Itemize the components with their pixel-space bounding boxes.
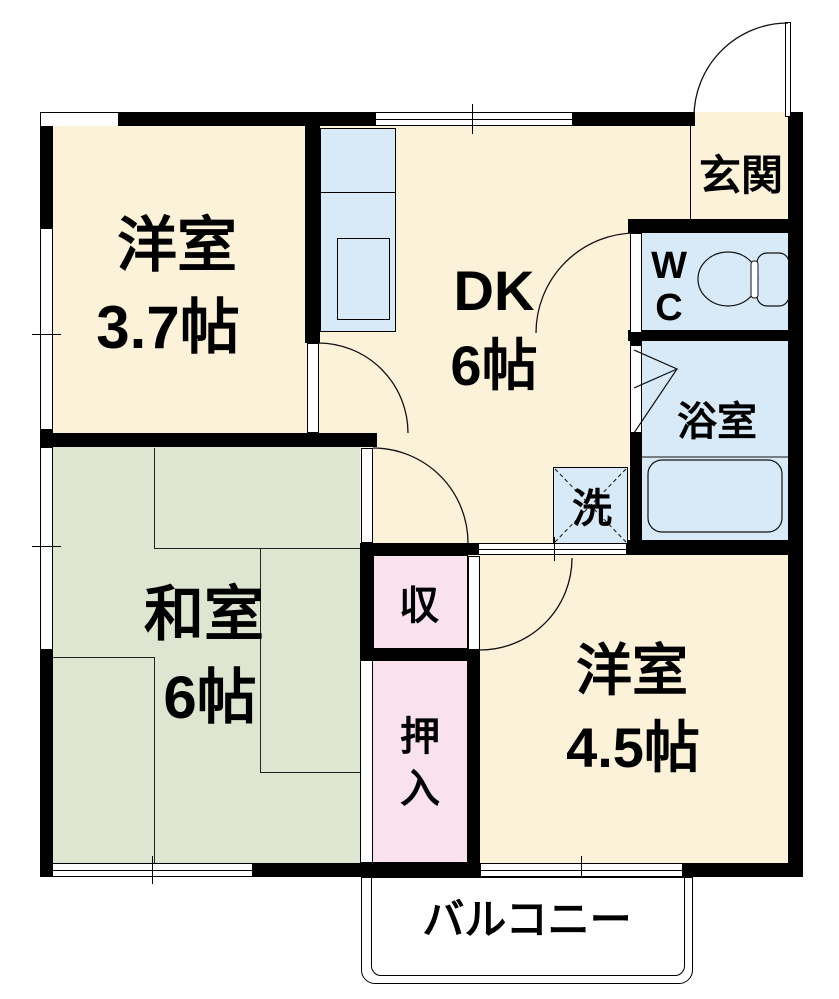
wall-bottom-b (683, 863, 803, 877)
wall-top-b (573, 112, 695, 126)
balcony-label: バルコニー (422, 899, 631, 941)
room37-name-label: 洋室 (117, 216, 237, 276)
wall-left-c (40, 650, 53, 877)
window-washitsu-left (40, 447, 53, 650)
door-leaf-bath-folding (630, 345, 642, 433)
room45-size-label: 4.5帖 (566, 720, 700, 776)
oshiire-fusuma-door (360, 660, 373, 863)
room45-name-label: 洋室 (576, 643, 688, 699)
wall-top-a (118, 112, 375, 126)
bathroom-label: 浴室 (677, 402, 757, 442)
kitchen-counter-divider (320, 192, 396, 193)
washitsu-name-label: 和室 (144, 585, 264, 645)
wall-bath-bottom (627, 540, 803, 555)
dk-size-label: 6帖 (450, 338, 537, 394)
door-leaf-room37 (307, 343, 319, 433)
washitsu-floor (53, 447, 360, 863)
genkan-divider-line (690, 117, 691, 219)
laundry-label: 洗 (572, 489, 612, 529)
entrance-door-arc (694, 23, 788, 117)
wall-corner-topleft (40, 112, 118, 126)
wall-wc-bath (628, 330, 803, 341)
washitsu-size-label: 6帖 (163, 668, 256, 728)
window-room37-left (40, 228, 53, 430)
door-leaf-room45 (468, 556, 480, 650)
oshiire-label-1: 押 (400, 717, 440, 757)
door-leaf-wc (630, 233, 642, 333)
wall-bath-west-b (630, 433, 642, 543)
wall-bottom-a (253, 863, 480, 877)
wall-closet-west (360, 543, 374, 660)
tatami-line (154, 448, 155, 548)
opening-room45-top (478, 543, 627, 555)
window-tick (32, 546, 61, 547)
tatami-line (154, 548, 360, 549)
wall-washitsu-top (40, 433, 377, 447)
dk-name-label: DK (454, 263, 535, 319)
wall-genkan-wc (628, 219, 803, 233)
window-dk-top (375, 112, 573, 126)
wall-closet-top (360, 543, 478, 555)
wc-label-w: W (651, 247, 687, 285)
wall-oshiire-east (468, 660, 480, 863)
genkan-label: 玄関 (699, 155, 783, 197)
wc-label-c: C (655, 289, 682, 327)
floor-plan: 洋室 3.7帖 DK 6帖 和室 6帖 洋室 4.5帖 玄関 W C 浴室 洗 … (0, 0, 839, 999)
wall-room37-east (305, 112, 320, 343)
kitchen-sink (337, 238, 390, 320)
oshiire-closet (372, 660, 468, 863)
window-tick (152, 856, 153, 884)
door-leaf-washitsu (361, 448, 373, 543)
door-leaf-entrance (785, 22, 791, 117)
oshiire-label-2: 入 (400, 769, 440, 809)
wall-closet-mid (360, 648, 480, 660)
storage-label: 収 (399, 586, 439, 626)
tatami-line (260, 772, 360, 773)
tatami-line (52, 657, 154, 658)
window-tick (472, 104, 473, 134)
room37-size-label: 3.7帖 (96, 298, 239, 358)
window-tick (32, 334, 61, 335)
wall-left-a (40, 126, 53, 228)
window-tick (554, 537, 555, 561)
tatami-line (154, 657, 155, 863)
